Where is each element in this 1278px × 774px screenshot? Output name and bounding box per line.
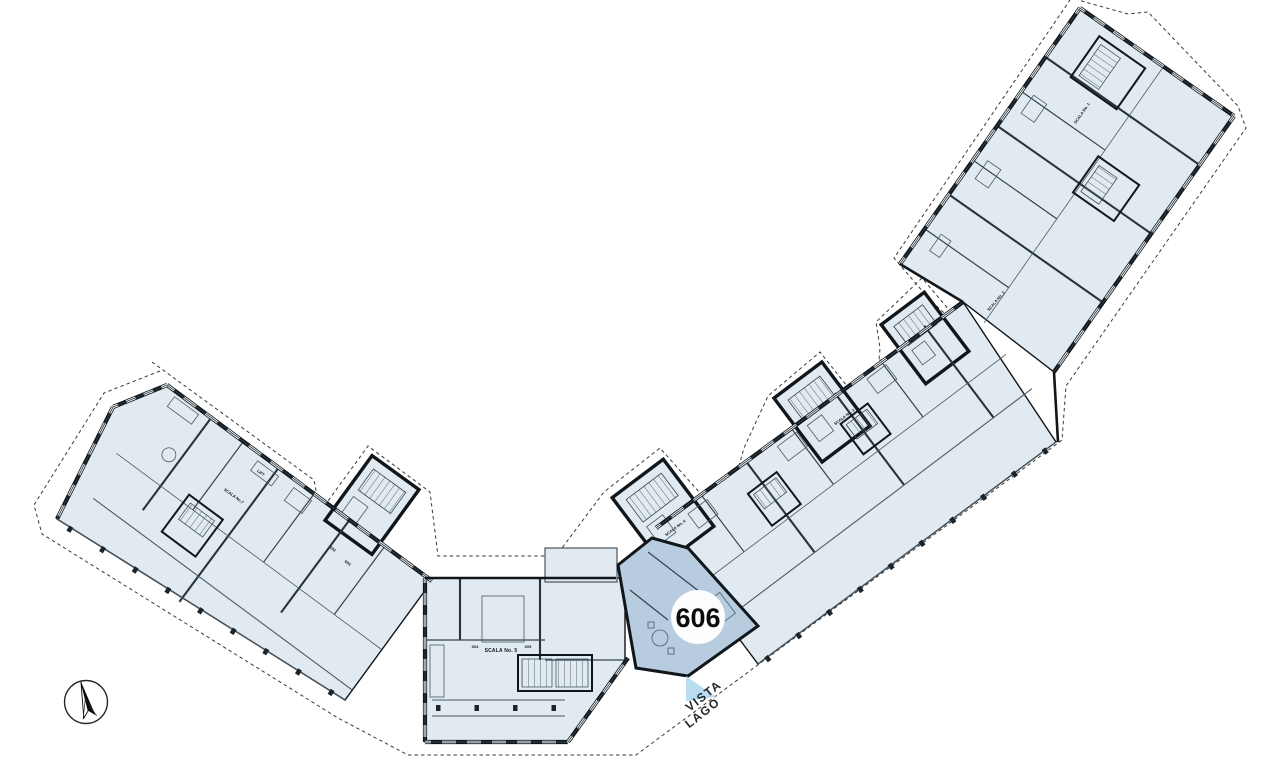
- label-scala-5: SCALA No. 5: [485, 648, 518, 654]
- unit-606-number: 606: [675, 603, 720, 633]
- vista-lago-label: VISTA LAGO: [682, 676, 724, 731]
- north-compass-icon: [65, 680, 108, 724]
- label-unit-605: 605: [525, 644, 532, 649]
- floor-plan-page: 606 SCALA No. 5 604 605 SCALA No.7 602 6…: [0, 0, 1278, 774]
- unit-606-badge[interactable]: 606: [671, 590, 725, 644]
- label-unit-604: 604: [472, 644, 479, 649]
- floor-plan-svg: 606 SCALA No. 5 604 605 SCALA No.7 602 6…: [0, 0, 1278, 774]
